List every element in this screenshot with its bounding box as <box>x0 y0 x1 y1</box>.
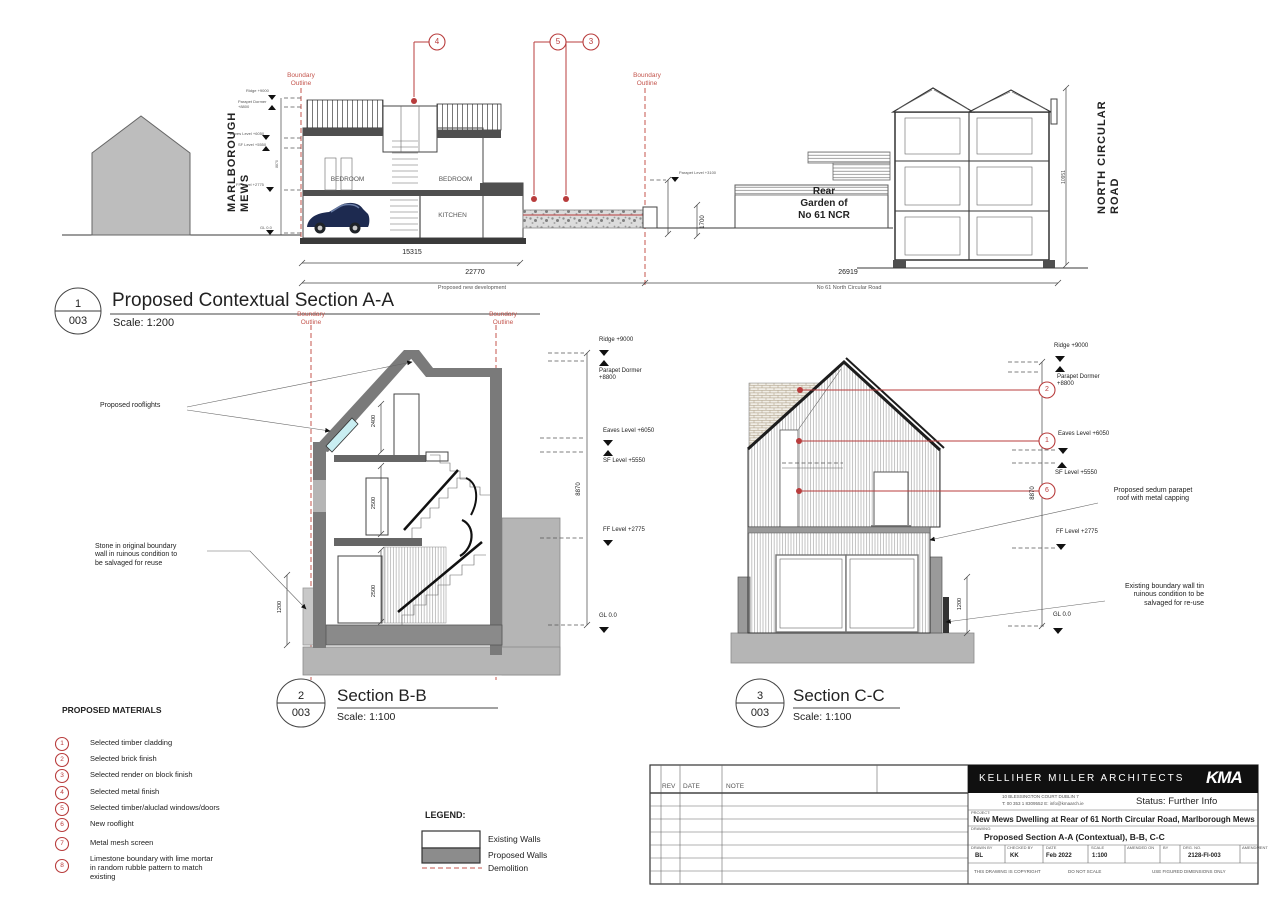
parapet-level-label: Parapet Level +3100 <box>679 171 716 176</box>
drawing-sheet-number: 003 <box>287 707 315 720</box>
caption-proposed-development: Proposed new development <box>418 285 526 291</box>
meta-header: CHECKED BY <box>1007 846 1033 851</box>
level-label: Eaves Level +6050 <box>230 132 264 137</box>
drawing-ref-number: 1 <box>70 298 86 311</box>
firm-address-line1: 10 BLESSINGTON COURT DUBLIN 7 <box>1002 794 1079 799</box>
rubble-wall <box>523 210 643 228</box>
meta-value-date: Feb 2022 <box>1046 853 1072 860</box>
material-callout-4: 4 <box>431 37 443 46</box>
drawing-sheet-number: 003 <box>746 707 774 720</box>
material-label: Limestone boundary with lime mortar in r… <box>90 855 213 882</box>
level-label: Eaves Level +6050 <box>603 428 654 435</box>
caption-no61: No 61 North Circular Road <box>793 285 905 291</box>
meta-header: BY <box>1163 846 1168 851</box>
meta-value-drg-no: 2128-FI-003 <box>1188 853 1221 860</box>
dormer <box>383 106 437 152</box>
glazed-door <box>776 555 846 632</box>
dim-22770: 22770 <box>455 269 495 277</box>
section-b-scale: Scale: 1:100 <box>337 711 395 723</box>
no61-building <box>857 88 1088 268</box>
level-label: SF Level +5550 <box>1055 470 1097 477</box>
note-rooflights: Proposed rooflights <box>100 402 160 410</box>
section-a-scale: Scale: 1:200 <box>113 317 174 330</box>
dim-1200: 1200 <box>957 586 963 622</box>
material-num: 5 <box>56 805 68 813</box>
dim-2500: 2500 <box>371 485 377 521</box>
footer-do-not-scale: DO NOT SCALE <box>1068 869 1101 874</box>
meta-header: SCALE <box>1091 846 1104 851</box>
dim-8870: 8870 <box>1030 475 1037 511</box>
level-label: Ridge +9000 <box>1054 343 1088 350</box>
material-num: 2 <box>56 756 68 764</box>
material-num: 8 <box>56 862 68 870</box>
material-callout-5: 5 <box>552 37 564 46</box>
section-a-linework <box>55 34 1088 334</box>
status-label: Status: Further Info <box>1136 796 1217 807</box>
section-a-title: Proposed Contextual Section A-A <box>112 290 394 312</box>
meta-value-scale: 1:100 <box>1092 853 1107 860</box>
footer-copyright: THIS DRAWING IS COPYRIGHT <box>974 869 1041 874</box>
material-callout-1: 1 <box>1041 437 1053 445</box>
note-sedum-roof: Proposed sedum parapet roof with metal c… <box>1100 487 1206 504</box>
level-label: FF Level +2775 <box>1056 529 1098 536</box>
firm-name: KELLIHER MILLER ARCHITECTS <box>979 773 1184 785</box>
material-callout-3: 3 <box>585 37 597 46</box>
material-label: Selected metal finish <box>90 788 159 797</box>
dim-8870: 8870 <box>576 471 583 507</box>
legend-linework <box>422 831 482 868</box>
section-c-scale: Scale: 1:100 <box>793 711 851 723</box>
level-label: FF Level +2775 <box>236 183 264 188</box>
level-label: GL 0.0 <box>260 226 272 231</box>
room-label-bedroom: BEDROOM <box>320 176 375 184</box>
material-label: New rooflight <box>90 820 134 829</box>
meta-value-checked: KK <box>1010 853 1019 860</box>
level-label: Eaves Level +6050 <box>1058 431 1109 438</box>
section-c-title: Section C-C <box>793 686 885 706</box>
level-label: GL 0.0 <box>599 613 617 620</box>
room-label-bedroom: BEDROOM <box>428 176 483 184</box>
dim-2400: 2400 <box>371 406 377 436</box>
boundary-outline-label: Boundary Outline <box>624 72 670 87</box>
boundary-outline-label: Boundary Outline <box>480 311 526 326</box>
room-label-kitchen: KITCHEN <box>425 212 480 220</box>
drawing-label: DRAWING: <box>971 827 991 832</box>
dim-26919: 26919 <box>828 269 868 277</box>
kma-logo: KMA <box>1206 768 1242 788</box>
level-label: Parapet Dormer +8800 <box>238 100 266 109</box>
legend-demolition-label: Demolition <box>488 863 528 873</box>
legend-header: LEGEND: <box>425 810 466 821</box>
dim-15315: 15315 <box>392 249 432 257</box>
glazed-door <box>846 555 918 632</box>
drawing-title: Proposed Section A-A (Contextual), B-B, … <box>984 832 1165 842</box>
drawing-ref-number: 2 <box>293 690 309 703</box>
legend-proposed-label: Proposed Walls <box>488 850 547 860</box>
section-c-linework <box>731 356 1105 727</box>
material-label: Selected brick finish <box>90 755 157 764</box>
drawing-sheet-number: 003 <box>64 315 92 328</box>
existing-mews-house <box>92 116 190 235</box>
dim-1200: 1200 <box>277 589 283 625</box>
material-num: 6 <box>56 821 68 829</box>
level-label: SF Level +5550 <box>603 458 645 465</box>
material-callout-6: 6 <box>1041 487 1053 495</box>
roof-deck-screen <box>307 100 383 128</box>
dim-2500: 2500 <box>371 573 377 609</box>
firm-address-line2: T: 00 353 1 8309552 E: info@kmaarch.ie <box>1002 801 1084 806</box>
drawing-ref-number: 3 <box>752 690 768 703</box>
boundary-outline-label: Boundary Outline <box>278 72 324 87</box>
street-label-north-circular-road: NORTH CIRCULAR ROAD <box>1096 68 1122 214</box>
level-column-c <box>1008 356 1068 634</box>
meta-header: DRAWN BY <box>971 846 992 851</box>
rear-garden-label: Rear Garden of No 61 NCR <box>788 186 860 221</box>
section-b-linework <box>187 325 613 727</box>
level-label: Parapet Dormer +8800 <box>599 368 642 382</box>
level-label: Parapet Dormer +8800 <box>1057 374 1100 388</box>
rooflight-upstand <box>394 394 419 456</box>
dim-1700: 1700 <box>700 205 707 239</box>
overall-height-dim: 8870 <box>275 150 279 178</box>
meta-header: AMENDED ON <box>1127 846 1154 851</box>
meta-header: DATE <box>1046 846 1056 851</box>
drawing-sheet: MARLBOROUGH MEWS NORTH CIRCULAR ROAD Bou… <box>0 0 1280 904</box>
level-label: Ridge +9000 <box>246 89 269 94</box>
note-stone-wall: Stone in original boundary wall in ruino… <box>95 543 177 568</box>
dim-10951: 10951 <box>1062 156 1068 198</box>
note-col-header: NOTE <box>726 783 744 791</box>
note-existing-wall: Existing boundary wall tin ruinous condi… <box>1102 583 1204 608</box>
material-num: 1 <box>56 740 68 748</box>
material-label: Selected timber/aluclad windows/doors <box>90 804 220 813</box>
material-callout-2: 2 <box>1041 386 1053 394</box>
section-b-title: Section B-B <box>337 686 427 706</box>
legend-existing-label: Existing Walls <box>488 834 541 844</box>
legend-existing-swatch <box>422 831 480 848</box>
level-label: SF Level +5550 <box>238 143 266 148</box>
project-title: New Mews Dwelling at Rear of 61 North Ci… <box>972 815 1256 824</box>
material-label: Selected timber cladding <box>90 739 172 748</box>
materials-header: PROPOSED MATERIALS <box>62 705 162 715</box>
material-num: 7 <box>56 840 68 848</box>
level-label: Ridge +9000 <box>599 337 633 344</box>
rev-col-header: REV <box>662 783 675 791</box>
footer-dimensions: USE FIGURED DIMENSIONS ONLY <box>1152 869 1226 874</box>
meta-value-drawn: BL <box>975 853 983 860</box>
material-label: Selected render on block finish <box>90 771 193 780</box>
material-num: 4 <box>56 789 68 797</box>
level-label: GL 0.0 <box>1053 612 1071 619</box>
boundary-outline-label: Boundary Outline <box>288 311 334 326</box>
meta-header: AMENDMENT <box>1242 846 1268 851</box>
legend-proposed-swatch <box>422 848 480 863</box>
meta-header: DRG. NO. <box>1183 846 1201 851</box>
material-label: Metal mesh screen <box>90 839 153 848</box>
level-label: FF Level +2775 <box>603 527 645 534</box>
drawing-linework <box>0 0 1280 904</box>
material-num: 3 <box>56 772 68 780</box>
date-col-header: DATE <box>683 783 700 791</box>
